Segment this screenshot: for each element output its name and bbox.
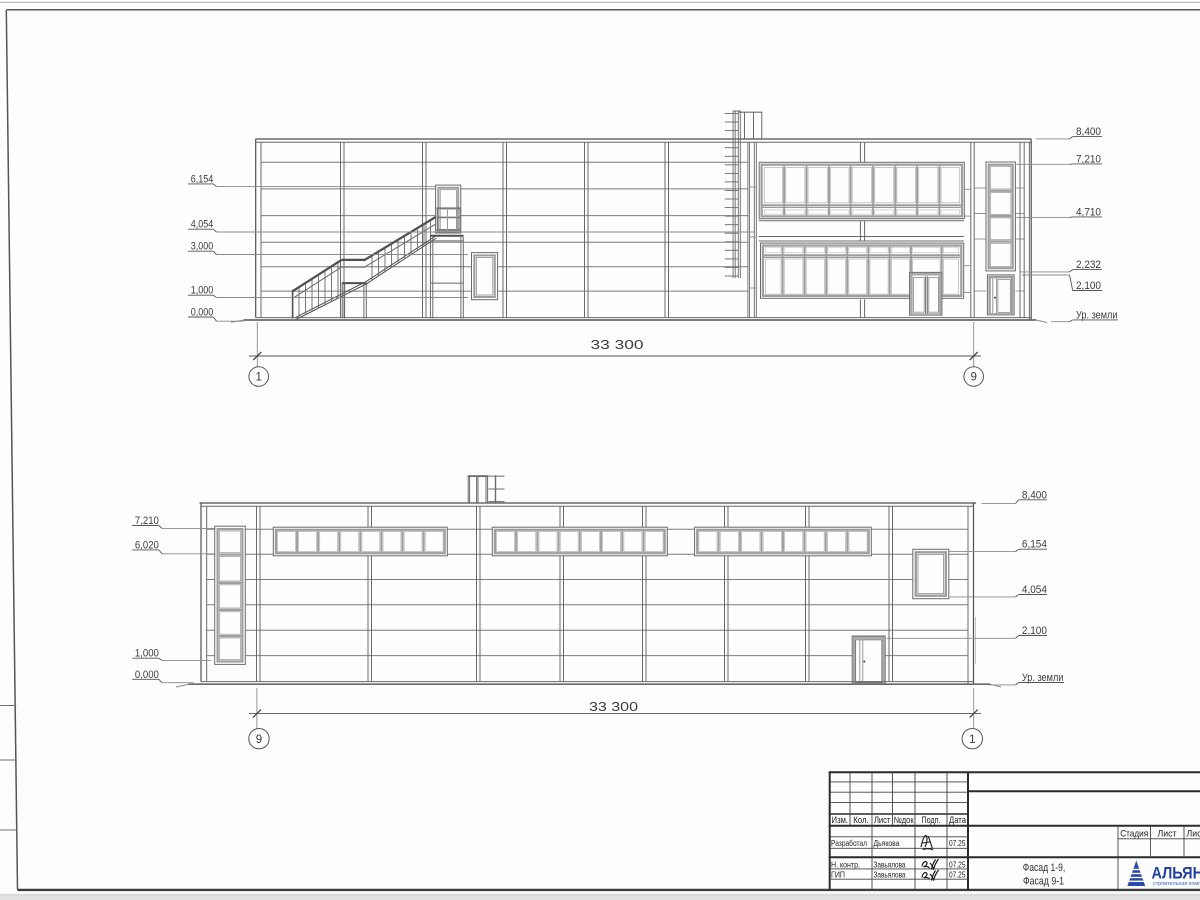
svg-text:строительная компания: строительная компания	[1153, 881, 1200, 887]
svg-text:1: 1	[255, 372, 261, 384]
svg-text:Лист: Лист	[1158, 828, 1177, 838]
svg-text:07.25: 07.25	[949, 859, 966, 869]
svg-text:33 300: 33 300	[589, 699, 638, 714]
svg-text:№док: №док	[894, 815, 914, 825]
svg-text:Дата: Дата	[949, 815, 966, 825]
svg-text:9: 9	[970, 372, 976, 384]
svg-text:Изм.: Изм.	[832, 815, 849, 825]
svg-text:Стадия: Стадия	[1120, 828, 1148, 838]
svg-text:АЛЬЯНС: АЛЬЯНС	[1152, 864, 1200, 883]
svg-text:1: 1	[969, 734, 975, 746]
svg-text:9: 9	[256, 734, 262, 746]
svg-text:Фасад 1-9,: Фасад 1-9,	[1023, 862, 1066, 874]
svg-text:Подп.: Подп.	[922, 815, 941, 825]
svg-text:07.25: 07.25	[949, 870, 966, 880]
svg-text:Лист: Лист	[874, 815, 891, 825]
svg-text:33 300: 33 300	[591, 337, 644, 352]
svg-text:Фасад 9-1: Фасад 9-1	[1023, 875, 1064, 887]
svg-text:Разработал: Разработал	[831, 838, 867, 848]
svg-text:07.25: 07.25	[949, 838, 966, 848]
svg-text:Дьякова: Дьякова	[874, 838, 900, 848]
svg-text:Завьялова: Завьялова	[874, 870, 906, 880]
svg-text:ГИП: ГИП	[831, 870, 845, 880]
svg-text:Кол.: Кол.	[853, 815, 869, 825]
svg-text:Н. контр.: Н. контр.	[831, 859, 860, 869]
svg-text:Лист: Лист	[1187, 828, 1200, 838]
svg-text:Завьялова: Завьялова	[874, 859, 906, 869]
